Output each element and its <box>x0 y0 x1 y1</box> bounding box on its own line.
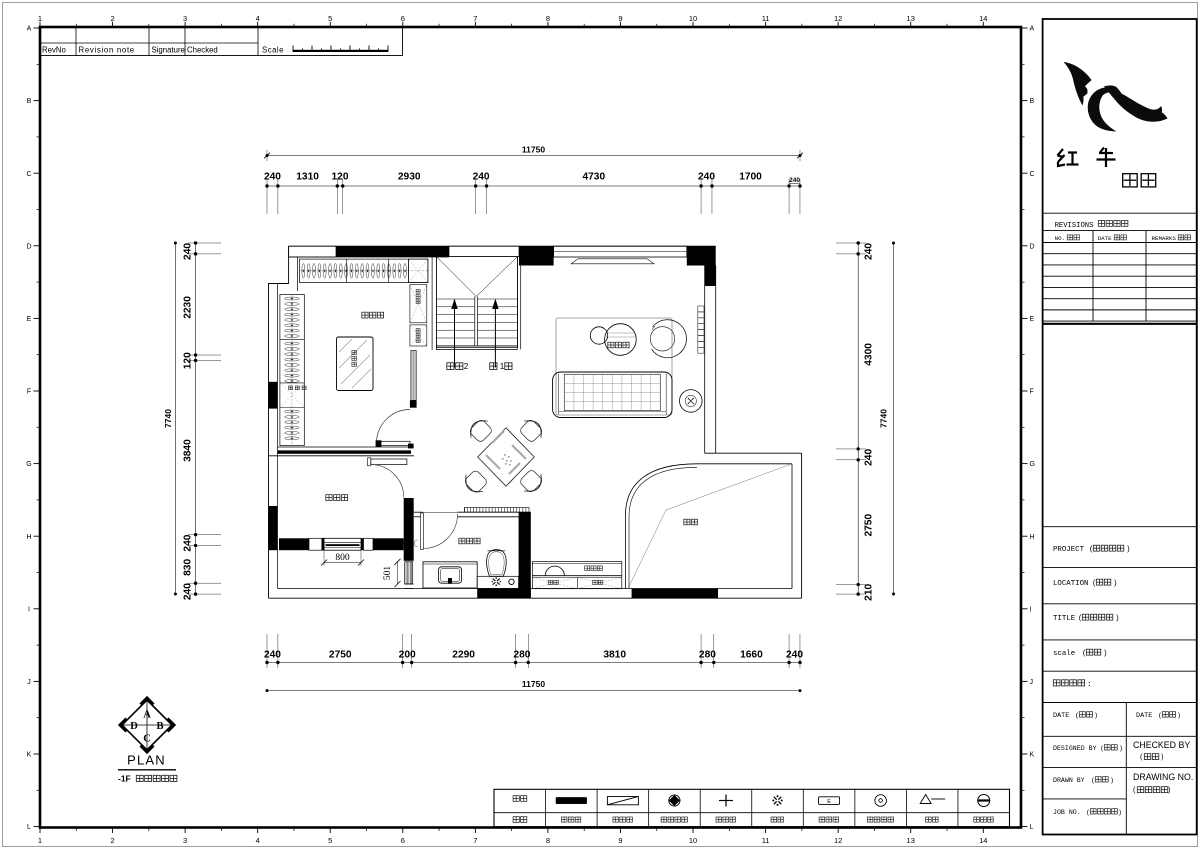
svg-text:10: 10 <box>689 836 697 845</box>
svg-text:11750: 11750 <box>522 679 545 689</box>
svg-text:): ) <box>1126 546 1130 554</box>
svg-text:REMARKS: REMARKS <box>1152 235 1177 242</box>
svg-text:): ) <box>1103 650 1107 658</box>
svg-text:1: 1 <box>38 836 42 845</box>
svg-text:(: ( <box>1092 580 1096 588</box>
svg-text:11: 11 <box>762 836 770 845</box>
svg-text:13: 13 <box>907 14 915 23</box>
svg-text:B: B <box>1030 98 1035 105</box>
svg-text:11: 11 <box>762 14 770 23</box>
svg-text:4300: 4300 <box>864 343 875 366</box>
svg-text:F: F <box>1030 389 1034 396</box>
svg-text:9: 9 <box>618 836 622 845</box>
svg-text:D: D <box>130 721 138 732</box>
svg-text:9: 9 <box>618 14 622 23</box>
svg-text:(: ( <box>1078 615 1082 623</box>
svg-text:): ) <box>1113 580 1117 588</box>
svg-text:2: 2 <box>464 362 469 371</box>
svg-text:3: 3 <box>183 836 187 845</box>
svg-text:G: G <box>26 461 31 468</box>
svg-text:240: 240 <box>698 172 715 183</box>
svg-text:NO.: NO. <box>1055 235 1065 242</box>
svg-text:A: A <box>1030 26 1035 33</box>
svg-text:DRAWN BY: DRAWN BY <box>1053 777 1085 784</box>
svg-text:120: 120 <box>332 172 349 183</box>
svg-text:K: K <box>27 752 32 759</box>
svg-text:2: 2 <box>110 14 114 23</box>
svg-text:C: C <box>1030 171 1035 178</box>
svg-text:(: ( <box>1082 650 1086 658</box>
svg-text:D: D <box>1030 243 1035 250</box>
svg-text:PROJECT: PROJECT <box>1053 546 1085 554</box>
svg-text:C: C <box>26 171 31 178</box>
svg-text:DATE: DATE <box>1053 712 1069 720</box>
svg-text:H: H <box>26 534 31 541</box>
svg-text:14: 14 <box>979 14 987 23</box>
svg-text:2750: 2750 <box>329 650 352 661</box>
svg-text:L: L <box>1030 824 1034 831</box>
svg-text:240: 240 <box>789 177 800 184</box>
svg-text::: : <box>1087 681 1092 689</box>
svg-text:(: ( <box>1158 712 1162 720</box>
svg-text:3810: 3810 <box>603 650 626 661</box>
svg-text:14: 14 <box>979 836 987 845</box>
svg-text:200: 200 <box>399 650 416 661</box>
svg-text:B: B <box>27 98 32 105</box>
svg-text:280: 280 <box>699 650 716 661</box>
svg-text:A: A <box>27 26 32 33</box>
svg-text:4730: 4730 <box>582 172 605 183</box>
svg-text:6: 6 <box>401 836 405 845</box>
svg-text:2230: 2230 <box>183 296 194 319</box>
svg-text:): ) <box>1094 712 1098 720</box>
svg-text:DATE: DATE <box>1098 235 1112 242</box>
svg-text:J: J <box>27 679 31 686</box>
svg-text:D: D <box>26 243 31 250</box>
svg-text:240: 240 <box>786 650 803 661</box>
svg-text:Signature: Signature <box>152 46 185 55</box>
svg-text:A: A <box>143 710 151 721</box>
svg-text:CHECKED BY: CHECKED BY <box>1133 740 1190 750</box>
svg-text:): ) <box>1177 712 1181 720</box>
svg-text:DRAWING NO.: DRAWING NO. <box>1133 772 1193 782</box>
svg-text:K: K <box>1030 752 1035 759</box>
svg-text:2750: 2750 <box>864 514 875 537</box>
svg-text:280: 280 <box>513 650 530 661</box>
svg-text:L: L <box>27 824 31 831</box>
svg-text:240: 240 <box>264 172 281 183</box>
svg-text:13: 13 <box>907 836 915 845</box>
svg-text:G: G <box>1030 461 1035 468</box>
svg-text:3: 3 <box>183 14 187 23</box>
svg-text:): ) <box>1119 745 1123 752</box>
svg-text:scale: scale <box>1053 650 1075 658</box>
svg-text:2: 2 <box>110 836 114 845</box>
svg-text:Scale: Scale <box>262 46 284 55</box>
svg-text:12: 12 <box>834 836 842 845</box>
svg-text:I: I <box>1030 606 1032 613</box>
svg-text:): ) <box>1115 615 1119 623</box>
svg-text:2930: 2930 <box>398 172 421 183</box>
svg-text:(: ( <box>1100 745 1104 752</box>
svg-text:DATE: DATE <box>1136 712 1152 720</box>
svg-text:4: 4 <box>256 14 260 23</box>
svg-text:F: F <box>27 389 31 396</box>
svg-text:E: E <box>27 316 32 323</box>
svg-text:8: 8 <box>546 836 550 845</box>
svg-text:12: 12 <box>834 14 842 23</box>
svg-text:11750: 11750 <box>522 145 545 155</box>
svg-text:PLAN: PLAN <box>127 753 166 768</box>
svg-text:(: ( <box>1075 712 1079 720</box>
svg-text:RevNo: RevNo <box>42 46 66 55</box>
svg-text:(: ( <box>1089 546 1093 554</box>
svg-text:800: 800 <box>335 553 350 563</box>
svg-text:240: 240 <box>183 243 194 260</box>
svg-text:LOCATION: LOCATION <box>1053 580 1088 588</box>
svg-text:1700: 1700 <box>739 172 762 183</box>
svg-text:1: 1 <box>500 362 505 371</box>
svg-text:(: ( <box>1091 777 1095 784</box>
svg-text:E: E <box>1030 316 1035 323</box>
svg-text:7: 7 <box>473 14 477 23</box>
svg-text:C: C <box>143 734 151 745</box>
svg-text:E: E <box>827 799 831 805</box>
svg-text:240: 240 <box>183 534 194 551</box>
svg-text:6: 6 <box>401 14 405 23</box>
svg-text:): ) <box>1110 777 1114 784</box>
svg-text:I: I <box>28 606 30 613</box>
svg-text:830: 830 <box>183 559 194 576</box>
svg-text:-1F: -1F <box>118 774 131 784</box>
svg-text:4: 4 <box>256 836 260 845</box>
svg-text:5: 5 <box>328 14 332 23</box>
svg-text:B: B <box>156 721 163 732</box>
svg-text:8: 8 <box>546 14 550 23</box>
svg-text:240: 240 <box>183 583 194 600</box>
svg-text:210: 210 <box>864 583 875 600</box>
svg-text:1310: 1310 <box>296 172 319 183</box>
svg-text:): ) <box>1161 752 1163 761</box>
svg-text:7: 7 <box>473 836 477 845</box>
svg-text:3840: 3840 <box>183 439 194 462</box>
svg-text:240: 240 <box>473 172 490 183</box>
svg-text:240: 240 <box>864 243 875 260</box>
svg-text:240: 240 <box>264 650 281 661</box>
svg-text:1660: 1660 <box>740 650 763 661</box>
svg-text:1: 1 <box>38 14 42 23</box>
svg-text:(: ( <box>1086 809 1090 816</box>
svg-text:Checked: Checked <box>187 46 218 55</box>
svg-text:501: 501 <box>383 566 393 581</box>
svg-text:240: 240 <box>864 449 875 466</box>
svg-text:DESIGNED BY: DESIGNED BY <box>1053 745 1097 752</box>
svg-text:): ) <box>1118 809 1122 816</box>
svg-text:): ) <box>1168 785 1170 794</box>
svg-text:2290: 2290 <box>452 650 475 661</box>
svg-text:TITLE: TITLE <box>1053 615 1076 623</box>
svg-text:JOB NO.: JOB NO. <box>1053 809 1081 816</box>
svg-text:7740: 7740 <box>163 409 173 428</box>
svg-text:J: J <box>1030 679 1034 686</box>
svg-text:5: 5 <box>328 836 332 845</box>
svg-text:H: H <box>1030 534 1035 541</box>
svg-text:120: 120 <box>183 352 194 369</box>
svg-text:Revision note: Revision note <box>79 46 135 55</box>
svg-text:7740: 7740 <box>879 409 889 428</box>
svg-text:REVISIONS: REVISIONS <box>1055 222 1094 230</box>
svg-text:10: 10 <box>689 14 697 23</box>
